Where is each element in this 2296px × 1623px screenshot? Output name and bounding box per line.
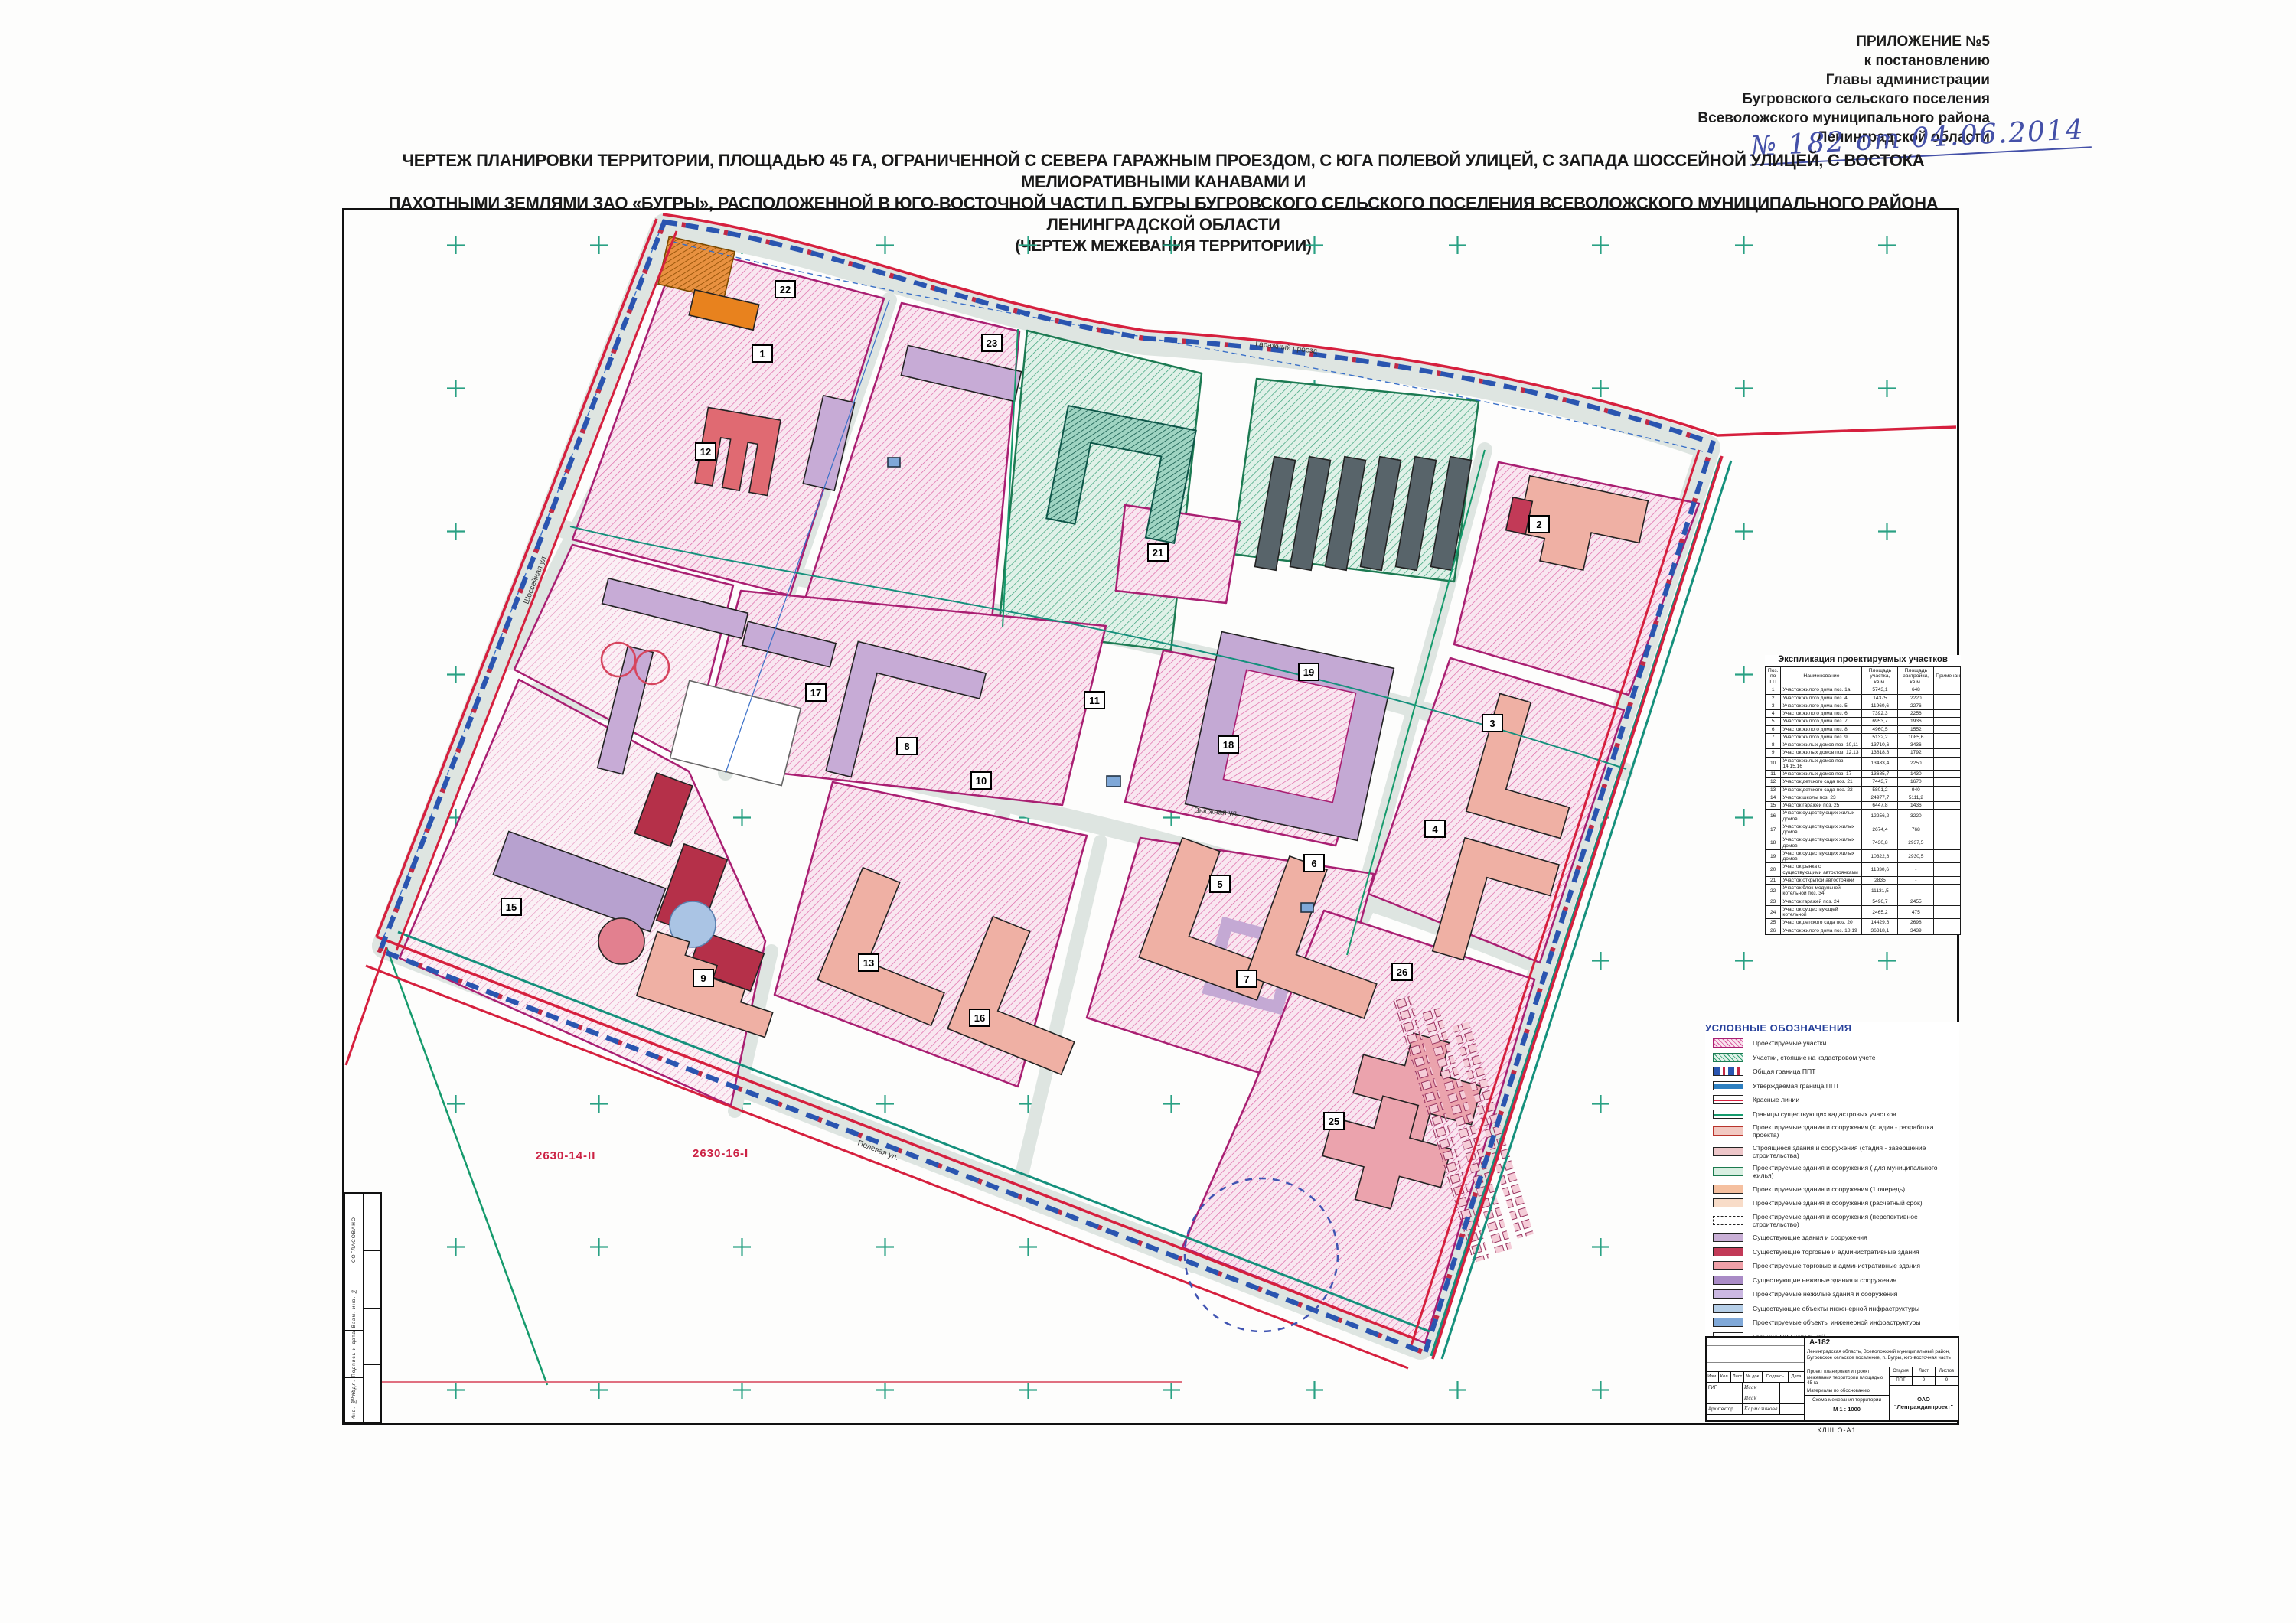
legend-label: Проектируемые участки — [1753, 1039, 1826, 1047]
legend-label: Участки, стоящие на кадастровом учете — [1753, 1054, 1876, 1061]
stamp-col-headers: Изм.Кол.Лист№ док.ПодписьДата — [1707, 1372, 1804, 1383]
table-row: 24Участок существующей котельной2465,247… — [1766, 905, 1961, 919]
inventory-number: 73829 — [351, 1390, 356, 1404]
sheets-total: 9 — [1936, 1377, 1958, 1385]
table-row: 12Участок детского сада поз. 217443,7167… — [1766, 778, 1961, 786]
table-row: 13Участок детского сада поз. 225801,2940 — [1766, 786, 1961, 794]
table-row: 1Участок жилого дома поз. 1а5743,1648 — [1766, 686, 1961, 694]
table-row: 4Участок жилого дома поз. 67392,32256 — [1766, 710, 1961, 718]
table-row: 2Участок жилого дома поз. 4143752220 — [1766, 694, 1961, 702]
legend-label: Проектируемые здания и сооружения (персп… — [1753, 1213, 1959, 1228]
side-stamp-cell: Взам. инв. № — [345, 1286, 363, 1331]
document-number: А-182 — [1805, 1338, 1958, 1348]
legend-title: УСЛОВНЫЕ ОБОЗНАЧЕНИЯ — [1705, 1022, 1959, 1034]
stage-value: ППТ — [1890, 1377, 1913, 1385]
col-header-area: Площадь участка, кв.м. — [1862, 667, 1898, 686]
agreed-label: СОГЛАСОВАНО — [345, 1194, 363, 1286]
table-row: 6Участок жилого дома поз. 84960,51552 — [1766, 725, 1961, 733]
existing-commercial-building-swatch — [1713, 1247, 1743, 1256]
legend-label: Границы существующих кадастровых участко… — [1753, 1110, 1896, 1118]
legend-panel: УСЛОВНЫЕ ОБОЗНАЧЕНИЯ Проектируемые участ… — [1705, 1022, 1959, 1346]
legend-item: Проектируемые объекты инженерной инфраст… — [1713, 1318, 1959, 1327]
legend-label: Утверждаемая граница ППТ — [1753, 1082, 1839, 1090]
legend-label: Проектируемые торговые и административны… — [1753, 1262, 1920, 1269]
legend-item: Существующие здания и сооружения — [1713, 1233, 1959, 1242]
legend-item: Общая граница ППТ — [1713, 1067, 1959, 1076]
legend-label: Проектируемые нежилые здания и сооружени… — [1753, 1290, 1897, 1298]
project-name: Проект планировки и проект межевания тер… — [1805, 1367, 1889, 1396]
legend-label: Существующие торговые и административные… — [1753, 1248, 1919, 1256]
scheme-name: Схема межевания территории М 1 : 1000 — [1805, 1396, 1889, 1420]
annotation-line: ПРИЛОЖЕНИЕ №5 — [1698, 32, 1990, 51]
table-row: 3Участок жилого дома поз. 511960,62276 — [1766, 702, 1961, 709]
legend-item: Проектируемые торговые и административны… — [1713, 1261, 1959, 1270]
design-term-building-swatch — [1713, 1198, 1743, 1207]
legend-item: Участки, стоящие на кадастровом учете — [1713, 1053, 1959, 1062]
scanned-planning-sheet: ПРИЛОЖЕНИЕ №5 к постановлению Главы адми… — [0, 0, 2296, 1623]
stage-header-row: СтадияЛистЛистов — [1890, 1367, 1958, 1377]
legend-item: Проектируемые здания и сооружения (стади… — [1713, 1123, 1959, 1139]
organization-name: ОАО "Ленгражданпроект" — [1890, 1386, 1958, 1420]
legend-label: Проектируемые объекты инженерной инфраст… — [1753, 1318, 1920, 1326]
ppt-approved-boundary-swatch — [1713, 1081, 1743, 1090]
map-scale: М 1 : 1000 — [1805, 1406, 1889, 1413]
table-row: 26Участок жилого дома поз. 18,1936318,13… — [1766, 927, 1961, 934]
annotation-line: Бугровского сельского поселения — [1698, 90, 1990, 109]
projected-utility-object-swatch — [1713, 1318, 1743, 1327]
legend-items: Проектируемые участкиУчастки, стоящие на… — [1705, 1038, 1959, 1341]
side-stamp: СОГЛАСОВАНО Взам. инв. №Подпись и датаИн… — [344, 1192, 382, 1423]
table-row: 9Участок жилых домов поз. 12,1313818,817… — [1766, 749, 1961, 757]
legend-item: Проектируемые здания и сооружения (расче… — [1713, 1198, 1959, 1207]
legend-label: Проектируемые здания и сооружения (1 оче… — [1753, 1185, 1905, 1193]
legend-item: Красные линии — [1713, 1095, 1959, 1104]
projected-nonresidential-building-swatch — [1713, 1289, 1743, 1299]
legend-label: Проектируемые здания и сооружения (стади… — [1753, 1123, 1959, 1139]
annotation-line: Главы администрации — [1698, 70, 1990, 90]
first-stage-building-swatch — [1713, 1185, 1743, 1194]
col-header-name: Наименование — [1781, 667, 1862, 686]
table-row: 22Участок блок-модульной котельной поз. … — [1766, 885, 1961, 898]
projected-building-design-swatch — [1713, 1126, 1743, 1136]
table-row: 7Участок жилого дома поз. 95132,21085,6 — [1766, 733, 1961, 741]
table-row: 15Участок гаражей поз. 256447,81436 — [1766, 802, 1961, 810]
stamp-signatures: ГИПИсакИсакАрхитекторКармазинова — [1707, 1383, 1804, 1415]
red-lines-swatch — [1713, 1095, 1743, 1104]
table-row: 8Участок жилых домов поз. 10,1113710,634… — [1766, 741, 1961, 749]
legend-item: Существующие объекты инженерной инфрастр… — [1713, 1304, 1959, 1313]
title-block: Изм.Кол.Лист№ док.ПодписьДата ГИПИсакИса… — [1705, 1336, 1959, 1422]
side-stamp-empty-cells — [364, 1194, 380, 1422]
projected-commercial-building-swatch — [1713, 1261, 1743, 1270]
existing-cadastral-boundary-swatch — [1713, 1110, 1743, 1119]
table-row: 21Участок открытой автостоянки2835- — [1766, 876, 1961, 884]
legend-item: Границы существующих кадастровых участко… — [1713, 1110, 1959, 1119]
legend-item: Утверждаемая граница ППТ — [1713, 1081, 1959, 1090]
legend-item: Проектируемые здания и сооружения (персп… — [1713, 1213, 1959, 1228]
legend-label: Существующие нежилые здания и сооружения — [1753, 1276, 1896, 1284]
legend-label: Существующие объекты инженерной инфрастр… — [1753, 1305, 1919, 1312]
legend-label: Проектируемые здания и сооружения (расче… — [1753, 1199, 1923, 1207]
table-row: 23Участок гаражей поз. 245496,72455 — [1766, 898, 1961, 905]
legend-item: Строящиеся здания и сооружения (стадия -… — [1713, 1144, 1959, 1159]
table-row: 17Участок существующих жилых домов2674,4… — [1766, 823, 1961, 836]
annotation-line: к постановлению — [1698, 51, 1990, 70]
municipal-housing-building-swatch — [1713, 1167, 1743, 1176]
plot-table-body: 1Участок жилого дома поз. 1а5743,16482Уч… — [1766, 686, 1961, 935]
table-row: 10Участок жилых домов поз. 14,15,1613433… — [1766, 757, 1961, 771]
cadastral-parcel-swatch — [1713, 1053, 1743, 1062]
legend-item: Существующие нежилые здания и сооружения — [1713, 1276, 1959, 1285]
under-construction-building-swatch — [1713, 1147, 1743, 1156]
table-row: 19Участок существующих жилых домов10322,… — [1766, 849, 1961, 863]
legend-label: Красные линии — [1753, 1096, 1799, 1103]
legend-label: Существующие здания и сооружения — [1753, 1234, 1867, 1241]
table-row: 16Участок существующих жилых домов12256,… — [1766, 810, 1961, 823]
title-line: ЧЕРТЕЖ ПЛАНИРОВКИ ТЕРРИТОРИИ, ПЛОЩАДЬЮ 4… — [344, 150, 1982, 193]
object-location: Ленинградская область, Всеволожский муни… — [1805, 1348, 1958, 1367]
explication-panel: Экспликация проектируемых участков Поз. … — [1765, 655, 1961, 935]
legend-label: Строящиеся здания и сооружения (стадия -… — [1753, 1144, 1959, 1159]
col-header-built: Площадь застройки, кв.м. — [1898, 667, 1934, 686]
projected-parcel-swatch — [1713, 1038, 1743, 1048]
signature-row: ГИПИсак — [1707, 1383, 1804, 1393]
table-row: 20Участок рынка с существующими автостоя… — [1766, 863, 1961, 877]
table-row: 5Участок жилого дома поз. 76953,71936 — [1766, 718, 1961, 725]
table-row: 18Участок существующих жилых домов7430,8… — [1766, 836, 1961, 850]
table-row: 25Участок детского сада поз. 2014429,626… — [1766, 919, 1961, 927]
existing-nonresidential-building-swatch — [1713, 1276, 1743, 1285]
table-row: 14Участок школы поз. 2324977,75111,2 — [1766, 794, 1961, 801]
perspective-building-swatch — [1713, 1216, 1743, 1225]
legend-item: Проектируемые нежилые здания и сооружени… — [1713, 1289, 1959, 1299]
col-header-pos: Поз. по ГП — [1766, 667, 1781, 686]
table-title: Экспликация проектируемых участков — [1765, 655, 1961, 664]
signature-row: Исак — [1707, 1393, 1804, 1404]
table-row: 11Участок жилых домов поз. 1713685,71430 — [1766, 771, 1961, 778]
side-stamp-cell: Подпись и дата — [345, 1331, 363, 1378]
col-header-note: Примечание — [1934, 667, 1961, 686]
format-note: КЛШ О-А1 — [1745, 1426, 1929, 1434]
stage-value-row: ППТ 9 9 — [1890, 1377, 1958, 1386]
existing-utility-object-swatch — [1713, 1304, 1743, 1313]
signature-row: АрхитекторКармазинова — [1707, 1404, 1804, 1415]
revision-area — [1707, 1338, 1804, 1372]
ppt-common-boundary-swatch — [1713, 1067, 1743, 1076]
sheet-number: 9 — [1913, 1377, 1936, 1385]
legend-label: Проектируемые здания и сооружения ( для … — [1753, 1164, 1959, 1179]
explication-table: Поз. по ГП Наименование Площадь участка,… — [1765, 666, 1961, 935]
legend-item: Проектируемые участки — [1713, 1038, 1959, 1048]
existing-building-swatch — [1713, 1233, 1743, 1242]
legend-item: Существующие торговые и административные… — [1713, 1247, 1959, 1256]
legend-item: Проектируемые здания и сооружения (1 оче… — [1713, 1185, 1959, 1194]
legend-item: Проектируемые здания и сооружения ( для … — [1713, 1164, 1959, 1179]
legend-label: Общая граница ППТ — [1753, 1067, 1815, 1075]
